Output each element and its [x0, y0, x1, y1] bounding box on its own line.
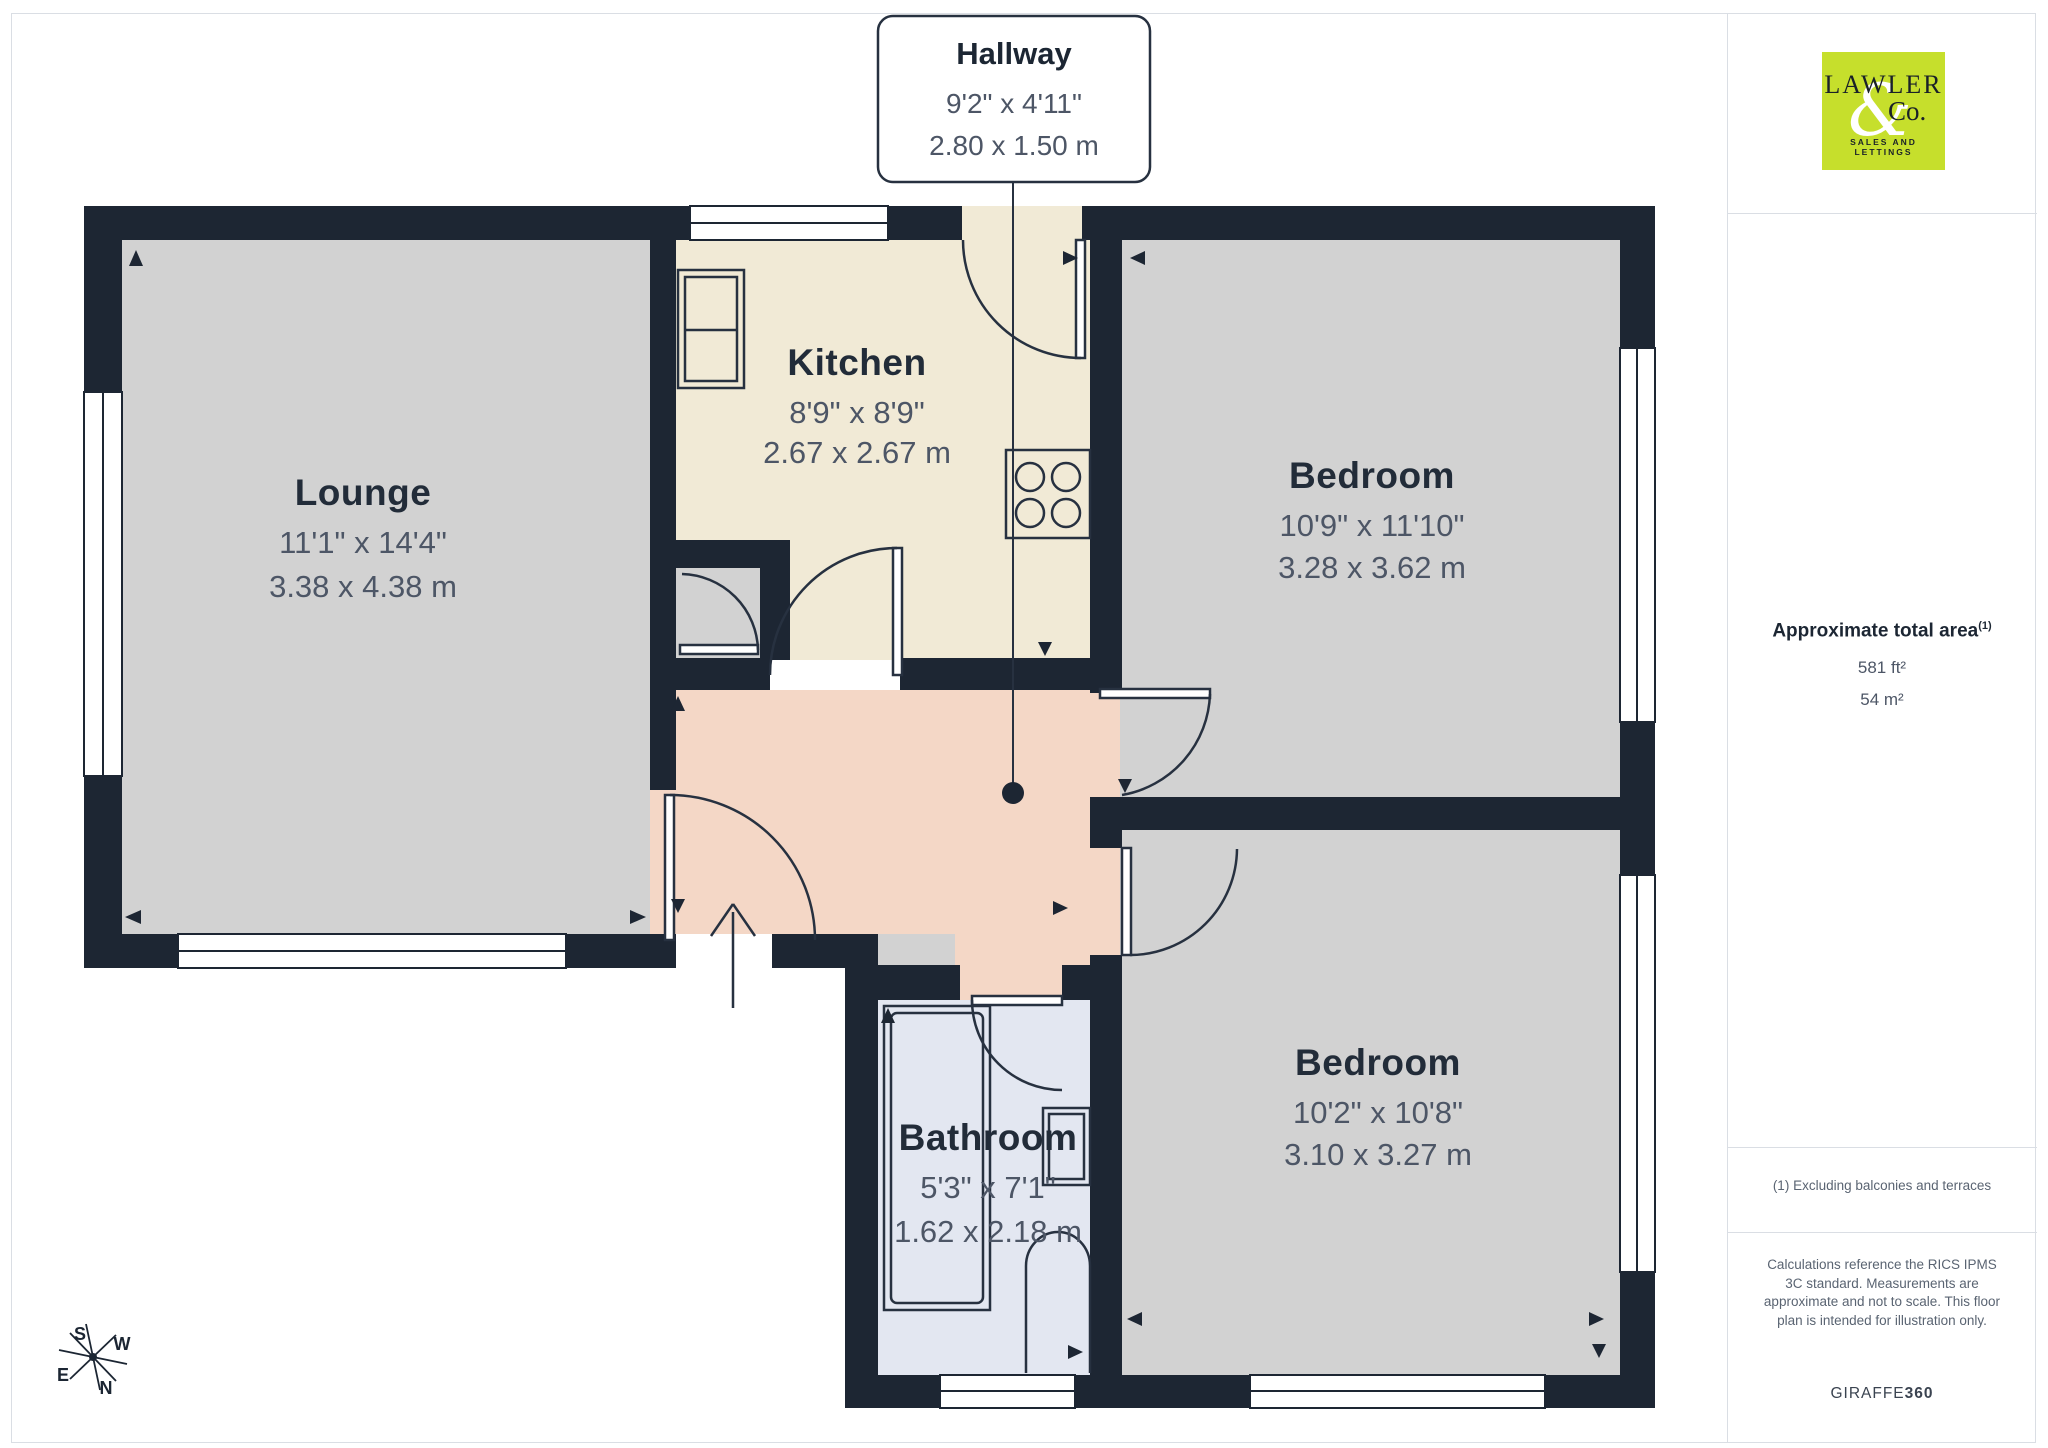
bedroom2-right-window — [1620, 875, 1655, 1272]
callout-metric: 2.80 x 1.50 m — [929, 130, 1099, 161]
lounge-bottom-window — [178, 934, 566, 968]
bathroom-bottom-window — [940, 1375, 1075, 1408]
room-name: Bedroom — [1295, 1042, 1461, 1083]
logo-name: LAWLER — [1822, 70, 1945, 100]
brand-suffix: 360 — [1905, 1385, 1934, 1402]
brand-name: GIRAFFE — [1830, 1385, 1904, 1402]
bedroom1-label: Bedroom 10'9" x 11'10" 3.28 x 3.62 m — [1278, 455, 1466, 585]
room-name: Bathroom — [899, 1117, 1078, 1158]
sidebar-left-border — [1727, 13, 1728, 1443]
room-imperial: 11'1" x 14'4" — [279, 525, 447, 560]
lounge-label: Lounge 11'1" x 14'4" 3.38 x 4.38 m — [269, 472, 457, 604]
kitchen-label: Kitchen 8'9" x 8'9" 2.67 x 2.67 m — [763, 342, 951, 470]
agency-logo: & LAWLER Co. SALES AND LETTINGS — [1822, 52, 1945, 170]
room-imperial: 5'3" x 7'1" — [920, 1170, 1056, 1205]
area-footnote: (1) Excluding balconies and terraces — [1727, 1178, 2037, 1193]
room-metric: 3.28 x 3.62 m — [1278, 550, 1466, 585]
back-door-gap — [962, 206, 1082, 240]
sidebar-divider — [1727, 213, 2037, 214]
callout-room-name: Hallway — [956, 36, 1072, 71]
total-area-imperial: 581 ft² — [1727, 658, 2037, 678]
lounge-left-window — [84, 392, 122, 776]
room-metric: 3.10 x 3.27 m — [1284, 1137, 1472, 1172]
compass-n: N — [100, 1378, 113, 1398]
total-area-block: Approximate total area(1) 581 ft² 54 m² — [1727, 620, 2037, 722]
room-metric: 2.67 x 2.67 m — [763, 435, 951, 470]
bathroom-label: Bathroom 5'3" x 7'1" 1.62 x 2.18 m — [894, 1117, 1082, 1249]
sidebar-divider — [1727, 1147, 2037, 1148]
room-name: Bedroom — [1289, 455, 1455, 496]
room-metric: 1.62 x 2.18 m — [894, 1214, 1082, 1249]
total-area-title: Approximate total area(1) — [1727, 620, 2037, 642]
disclaimer-text: Calculations reference the RICS IPMS 3C … — [1757, 1256, 2007, 1331]
sidebar-divider — [1727, 1232, 2037, 1233]
info-sidebar: & LAWLER Co. SALES AND LETTINGS Approxim… — [1727, 13, 2037, 1443]
room-name: Lounge — [295, 472, 432, 513]
bedroom2-door-gap — [1090, 848, 1122, 955]
total-area-superscript: (1) — [1978, 620, 1991, 632]
logo-co: Co. — [1888, 96, 1926, 127]
room-imperial: 8'9" x 8'9" — [789, 395, 925, 430]
kitchen-top-window — [690, 206, 888, 240]
bedroom2-label: Bedroom 10'2" x 10'8" 3.10 x 3.27 m — [1284, 1042, 1472, 1172]
total-area-metric: 54 m² — [1727, 690, 2037, 710]
compass-s: S — [74, 1324, 86, 1344]
giraffe360-brand: GIRAFFE360 — [1727, 1385, 2037, 1403]
total-area-title-text: Approximate total area — [1772, 620, 1978, 641]
callout-anchor-dot — [1002, 782, 1024, 804]
room-imperial: 10'2" x 10'8" — [1293, 1095, 1463, 1130]
callout-imperial: 9'2" x 4'11" — [946, 88, 1082, 119]
room-name: Kitchen — [787, 342, 926, 383]
room-imperial: 10'9" x 11'10" — [1280, 508, 1465, 543]
recess-floor — [878, 934, 955, 965]
bedroom1-door-gap — [1090, 693, 1122, 797]
compass-w: W — [114, 1334, 131, 1354]
room-metric: 3.38 x 4.38 m — [269, 569, 457, 604]
logo-tagline: SALES AND LETTINGS — [1822, 137, 1945, 157]
bedroom1-right-window — [1620, 348, 1655, 722]
compass-e: E — [57, 1365, 69, 1385]
bedroom2-bottom-window — [1250, 1375, 1545, 1408]
